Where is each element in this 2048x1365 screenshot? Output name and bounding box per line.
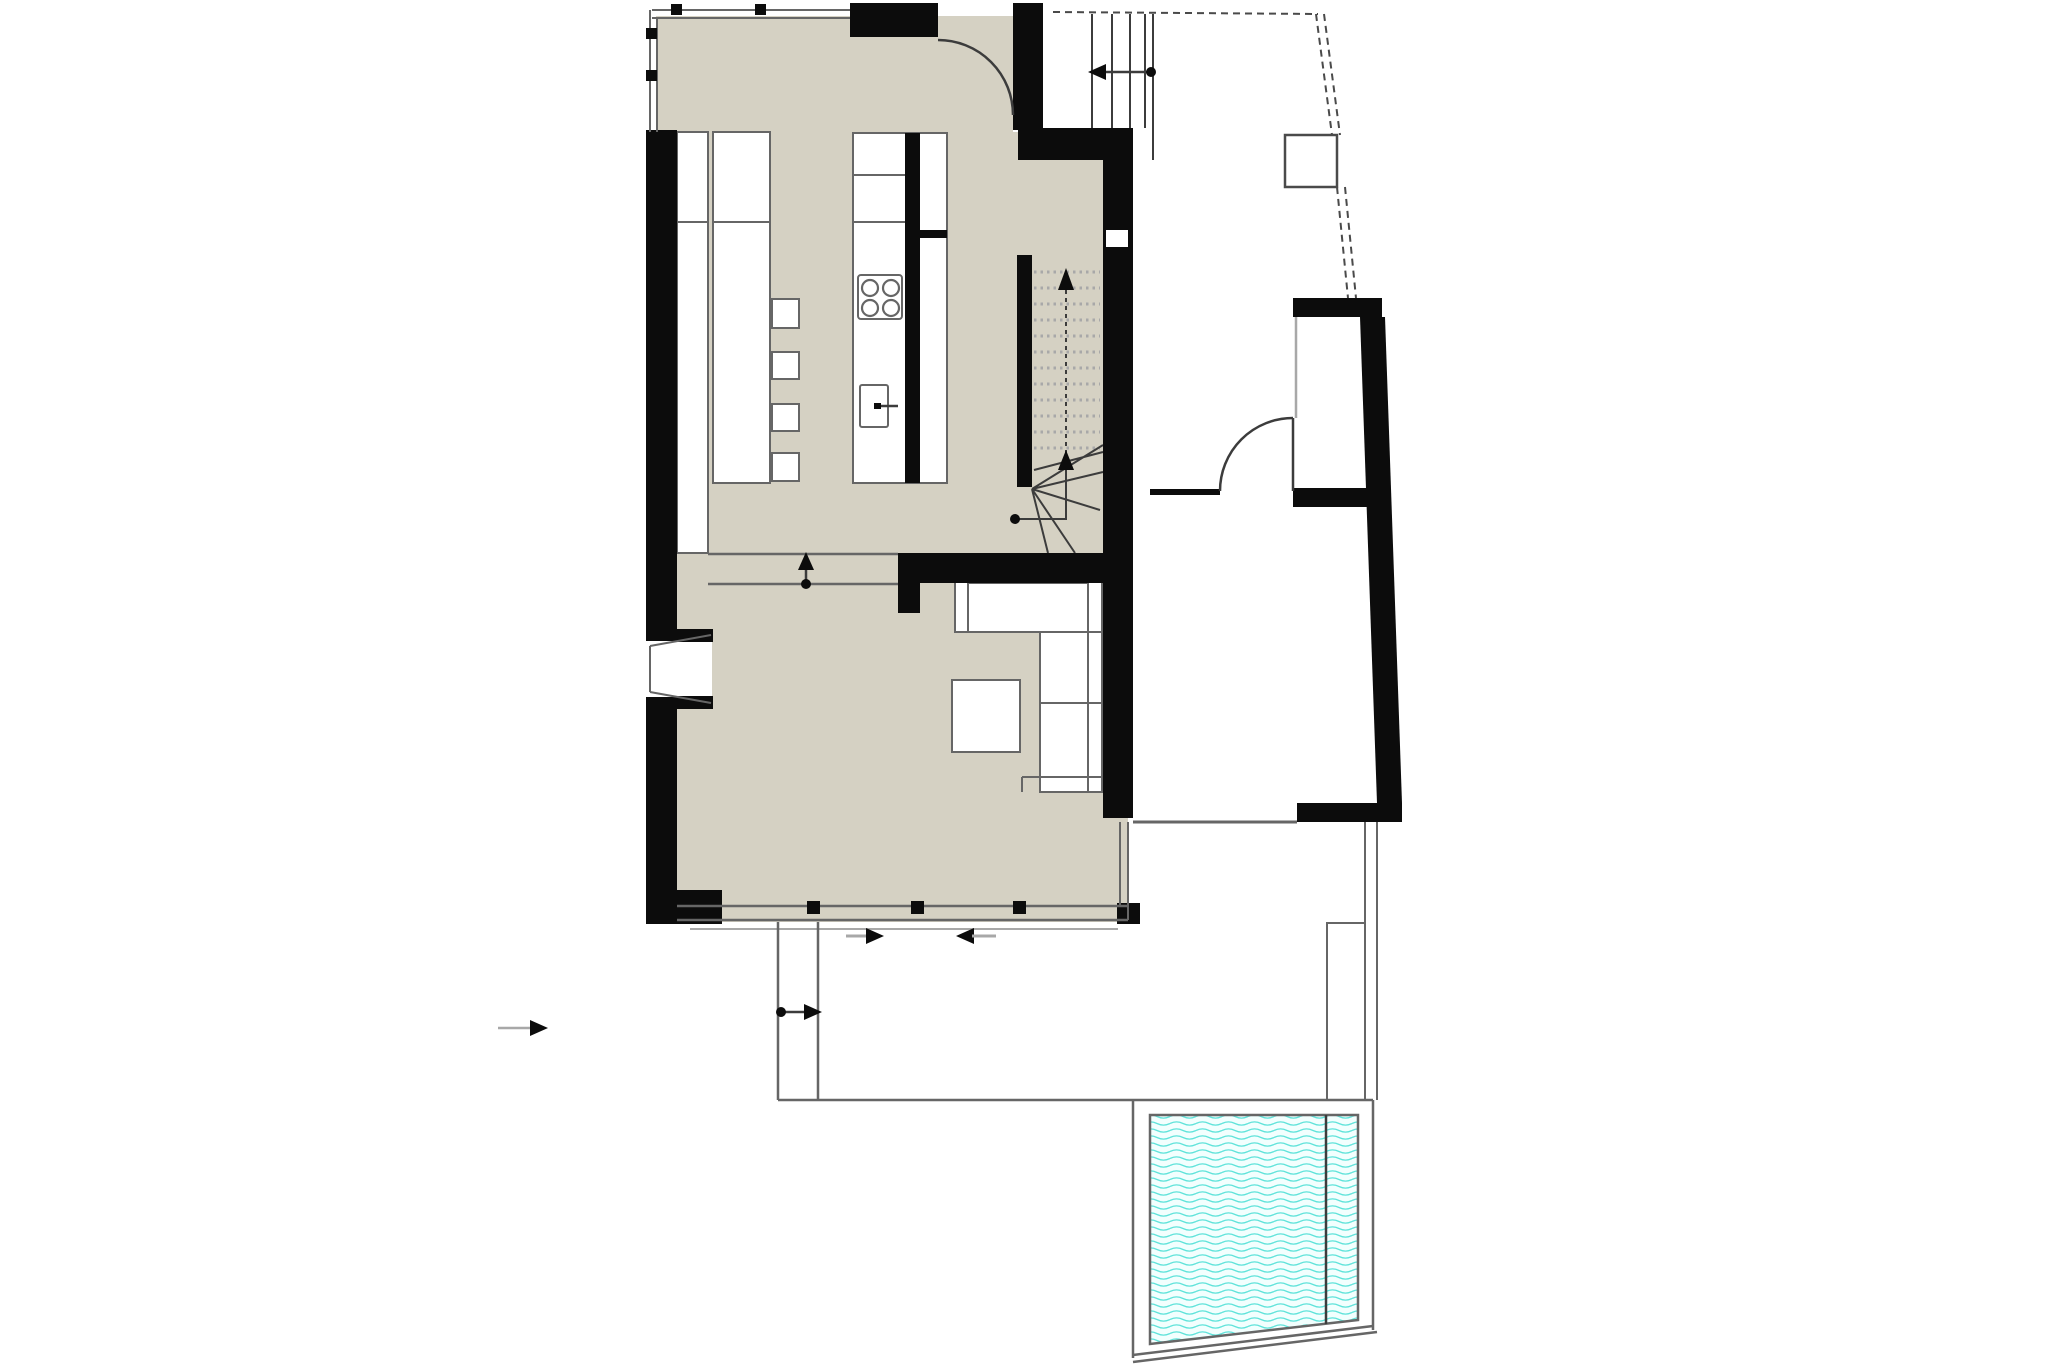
terrace-planter-strip bbox=[1327, 923, 1365, 1100]
walkway-arrow-dot bbox=[776, 1007, 786, 1017]
property-line-north bbox=[1053, 12, 1318, 14]
bar-stool bbox=[772, 299, 799, 328]
bar-stool bbox=[772, 352, 799, 379]
wall-west bbox=[646, 130, 677, 890]
coffee-table bbox=[952, 680, 1020, 752]
side-entry-arrow bbox=[498, 1020, 548, 1036]
west-window-niche bbox=[646, 629, 713, 709]
wall-counter-tall bbox=[677, 132, 708, 553]
mullion bbox=[646, 70, 657, 81]
walk-line-start-dot bbox=[1010, 514, 1020, 524]
entry-arrow-dot bbox=[1146, 67, 1156, 77]
wall-north bbox=[850, 3, 938, 37]
wall-living-north bbox=[898, 553, 1133, 583]
utility-box bbox=[1285, 135, 1337, 187]
cooktop-symbol bbox=[858, 275, 902, 319]
slide-arrow-left bbox=[956, 928, 974, 944]
wall-north-entry-corner bbox=[1013, 3, 1043, 130]
bar-stool bbox=[772, 453, 799, 481]
hall-door-swing-arc bbox=[1220, 418, 1293, 491]
wall-annex-mid-thin bbox=[1150, 489, 1220, 495]
bar-stool bbox=[772, 404, 799, 431]
sliding-wall-arrows bbox=[846, 928, 996, 944]
entry-direction-arrow bbox=[1088, 64, 1106, 80]
property-line-east-lower bbox=[1337, 187, 1356, 298]
mullion bbox=[671, 4, 682, 15]
wall-living-north-stub bbox=[898, 553, 920, 613]
wall-counter-low bbox=[713, 132, 770, 483]
pool-area bbox=[1133, 1100, 1377, 1362]
sliding-door-dot bbox=[801, 579, 811, 589]
wall-annex-south bbox=[1297, 803, 1402, 822]
kitchen-island-divider bbox=[905, 133, 920, 483]
wall-annex-room-north bbox=[1293, 298, 1382, 317]
wall-annex-east-slanted bbox=[1360, 317, 1402, 803]
floor-plan-drawing bbox=[0, 0, 2048, 1365]
mullion bbox=[1013, 901, 1026, 914]
window-wall-west bbox=[646, 10, 657, 132]
window-wall-north bbox=[652, 4, 850, 18]
island-bar-divider bbox=[920, 230, 947, 238]
floor-plan-canvas bbox=[0, 0, 2048, 1365]
walkway bbox=[776, 922, 822, 1100]
wall-stair-west bbox=[1017, 255, 1032, 487]
hall-door bbox=[1220, 317, 1296, 491]
slide-arrow-right bbox=[866, 928, 884, 944]
terrace-east-edge bbox=[1327, 822, 1377, 1100]
mullion bbox=[807, 901, 820, 914]
mullion bbox=[911, 901, 924, 914]
property-line-east-upper bbox=[1316, 14, 1340, 135]
walkway-direction-arrow bbox=[804, 1004, 822, 1020]
wall-annex-mid bbox=[1293, 488, 1385, 507]
wall-spine-niche bbox=[1106, 230, 1128, 247]
mullion bbox=[646, 28, 657, 39]
mullion bbox=[755, 4, 766, 15]
